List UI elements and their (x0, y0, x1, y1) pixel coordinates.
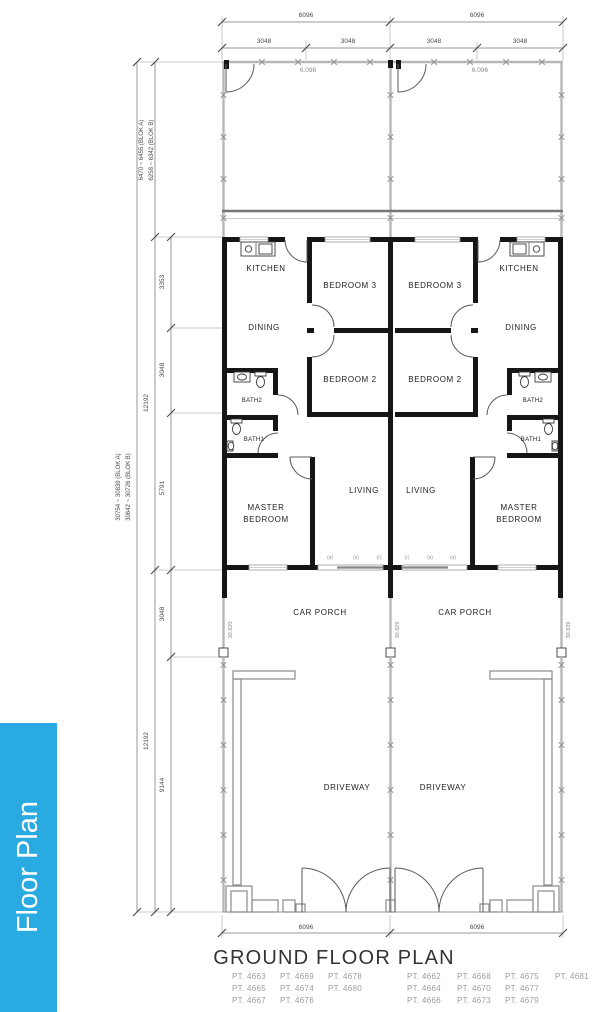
room-label-master-left-2: BEDROOM (243, 515, 289, 524)
floor-plan-tab[interactable]: Floor Plan (0, 723, 57, 1012)
room-label-dining-right: DINING (505, 323, 537, 332)
room-label-carporch-left: CAR PORCH (293, 608, 346, 617)
window-mark-l2: (a) (353, 555, 359, 561)
room-label-driveway-left: DRIVEWAY (324, 783, 371, 792)
dim-top-overall-1: 6096 (299, 12, 314, 19)
dim-bottom-2: 6096 (470, 924, 485, 931)
pt-lot: PT. 4664 (407, 984, 441, 993)
dim-yard-blok-a: 6470 ~ 6455 (BLOK A) (139, 120, 145, 181)
floor-plan-page: 6096 6096 3048 3048 3048 3048 30754 ~ 30… (0, 0, 600, 1012)
dim-front-sub-2: 9144 (159, 777, 166, 792)
room-label-bedroom3-left: BEDROOM 3 (323, 281, 376, 290)
floor-plan-tab-label: Floor Plan (12, 801, 45, 933)
yard-width-label-right: 6.096 (472, 67, 489, 74)
room-label-kitchen-right: KITCHEN (499, 264, 538, 273)
dim-house-sub-1: 3353 (159, 274, 166, 289)
pt-lot: PT. 4667 (232, 996, 266, 1005)
room-label-bedroom2-right: BEDROOM 2 (408, 375, 461, 384)
room-label-driveway-right: DRIVEWAY (420, 783, 467, 792)
dim-yard-blok-b: 6258 ~ 6342 (BLOK B) (149, 120, 155, 181)
boundary-mark-right: 30.839 (566, 622, 572, 639)
pt-lot: PT. 4673 (457, 996, 491, 1005)
window-mark-r3: (a) (450, 555, 456, 561)
room-label-bath2-right: BATH2 (523, 398, 544, 404)
dimension-lines (133, 16, 567, 938)
pt-lot: PT. 4681 (555, 972, 589, 981)
lot-boundaries (219, 598, 566, 912)
pt-lot: PT. 4674 (280, 984, 314, 993)
boundary-mark-left: 30.820 (228, 622, 234, 639)
dim-top-half-2: 3048 (341, 38, 356, 45)
room-label-bath1-left: BATH1 (244, 437, 265, 443)
room-label-master-right-1: MASTER (501, 503, 538, 512)
boundary-mark-center: 30.829 (395, 622, 401, 639)
room-label-dining-left: DINING (248, 323, 280, 332)
walls (222, 237, 563, 598)
dim-front-depth: 12192 (143, 732, 150, 750)
dim-top-overall-2: 6096 (470, 12, 485, 19)
drawing-title: GROUND FLOOR PLAN (213, 947, 455, 969)
room-label-bath2-left: BATH2 (242, 398, 263, 404)
yard-fences (221, 59, 565, 237)
dim-top-half-4: 3048 (513, 38, 528, 45)
window-mark-r1: (r) (405, 555, 410, 561)
room-label-bedroom2-left: BEDROOM 2 (323, 375, 376, 384)
floor-plan-drawing: 6096 6096 3048 3048 3048 3048 30754 ~ 30… (0, 0, 600, 1012)
dim-house-depth: 12192 (143, 394, 150, 412)
window-mark-l1: (a) (327, 555, 333, 561)
entrance-gates (302, 868, 483, 912)
yard-width-label-left: 6.096 (300, 67, 317, 74)
pt-lot: PT. 4676 (280, 996, 314, 1005)
pt-lot: PT. 4670 (457, 984, 491, 993)
window-mark-l3: (r) (377, 555, 382, 561)
dim-total-blok-b: 30642 ~ 30726 (BLOK B) (126, 453, 132, 521)
room-label-master-right-2: BEDROOM (496, 515, 542, 524)
dim-total-blok-a: 30754 ~ 30839 (BLOK A) (116, 453, 122, 520)
pt-lot: PT. 4668 (457, 972, 491, 981)
room-label-living-right: LIVING (406, 486, 436, 495)
pt-lot: PT. 4663 (232, 972, 266, 981)
dim-front-sub-1: 3048 (159, 606, 166, 621)
pt-lot: PT. 4665 (232, 984, 266, 993)
pt-lot: PT. 4666 (407, 996, 441, 1005)
dim-house-sub-2: 3048 (159, 362, 166, 377)
pt-lot: PT. 4678 (328, 972, 362, 981)
room-label-master-left-1: MASTER (248, 503, 285, 512)
pt-lot: PT. 4669 (280, 972, 314, 981)
dim-bottom-1: 6096 (299, 924, 314, 931)
room-label-kitchen-left: KITCHEN (246, 264, 285, 273)
window-mark-r2: (a) (427, 555, 433, 561)
dim-top-half-1: 3048 (257, 38, 272, 45)
room-label-living-left: LIVING (349, 486, 379, 495)
dim-top-half-3: 3048 (427, 38, 442, 45)
room-label-carporch-right: CAR PORCH (438, 608, 491, 617)
room-label-bedroom3-right: BEDROOM 3 (408, 281, 461, 290)
dim-house-sub-3: 5791 (159, 480, 166, 495)
pt-lot: PT. 4675 (505, 972, 539, 981)
pt-lot: PT. 4680 (328, 984, 362, 993)
pt-lot: PT. 4677 (505, 984, 539, 993)
pt-lot: PT. 4679 (505, 996, 539, 1005)
pt-lot: PT. 4662 (407, 972, 441, 981)
room-label-bath1-right: BATH1 (521, 437, 542, 443)
